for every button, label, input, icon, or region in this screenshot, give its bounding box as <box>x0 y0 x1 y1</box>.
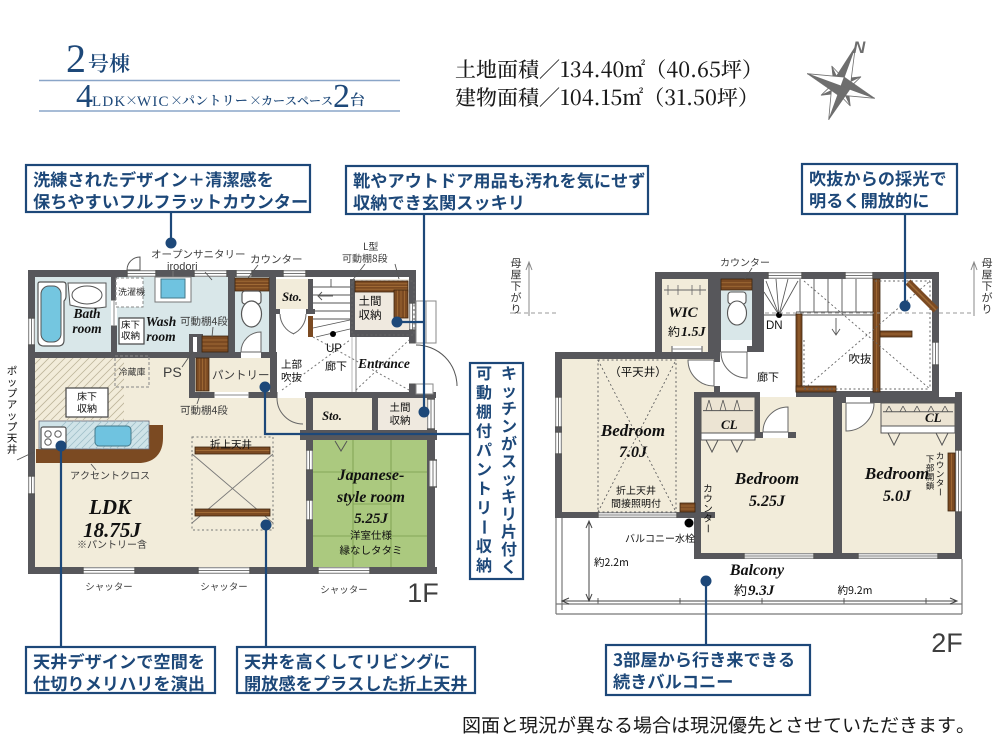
svg-text:Entrance: Entrance <box>357 356 410 371</box>
svg-text:Wash: Wash <box>146 314 177 329</box>
svg-text:9.3J: 9.3J <box>748 583 775 599</box>
svg-text:room: room <box>146 329 175 344</box>
svg-text:Japanese-: Japanese- <box>337 467 405 484</box>
svg-text:Bedroom: Bedroom <box>864 464 929 483</box>
svg-text:room: room <box>72 321 101 336</box>
svg-text:LDK: LDK <box>92 94 126 110</box>
svg-text:DN: DN <box>766 320 783 332</box>
svg-text:5.0J: 5.0J <box>883 488 912 505</box>
svg-text:LDK: LDK <box>88 495 133 519</box>
svg-text:Sto.: Sto. <box>282 290 302 304</box>
svg-text:2: 2 <box>333 78 350 115</box>
svg-text:CL: CL <box>721 417 738 432</box>
svg-text:Bedroom: Bedroom <box>600 421 665 440</box>
svg-text:2F: 2F <box>931 628 963 658</box>
svg-text:WIC: WIC <box>137 94 170 110</box>
svg-text:5.25J: 5.25J <box>749 493 786 510</box>
svg-text:Bath: Bath <box>72 306 100 321</box>
svg-text:5.25J: 5.25J <box>354 511 388 527</box>
svg-text:style room: style room <box>336 489 405 506</box>
svg-text:7.0J: 7.0J <box>619 444 648 461</box>
svg-text:N: N <box>853 38 866 57</box>
svg-text:irodori: irodori <box>167 261 198 273</box>
svg-text:2: 2 <box>66 36 86 81</box>
svg-text:Balcony: Balcony <box>729 562 785 579</box>
svg-text:4: 4 <box>76 78 93 115</box>
svg-text:PS: PS <box>163 364 182 380</box>
svg-text:1.5J: 1.5J <box>681 325 707 340</box>
svg-text:Sto.: Sto. <box>322 409 342 423</box>
svg-text:CL: CL <box>925 410 942 425</box>
svg-text:UP: UP <box>326 343 342 355</box>
svg-text:18.75J: 18.75J <box>83 518 142 542</box>
svg-text:Bedroom: Bedroom <box>734 469 799 488</box>
svg-text:WIC: WIC <box>668 305 698 321</box>
svg-text:1F: 1F <box>407 578 439 608</box>
